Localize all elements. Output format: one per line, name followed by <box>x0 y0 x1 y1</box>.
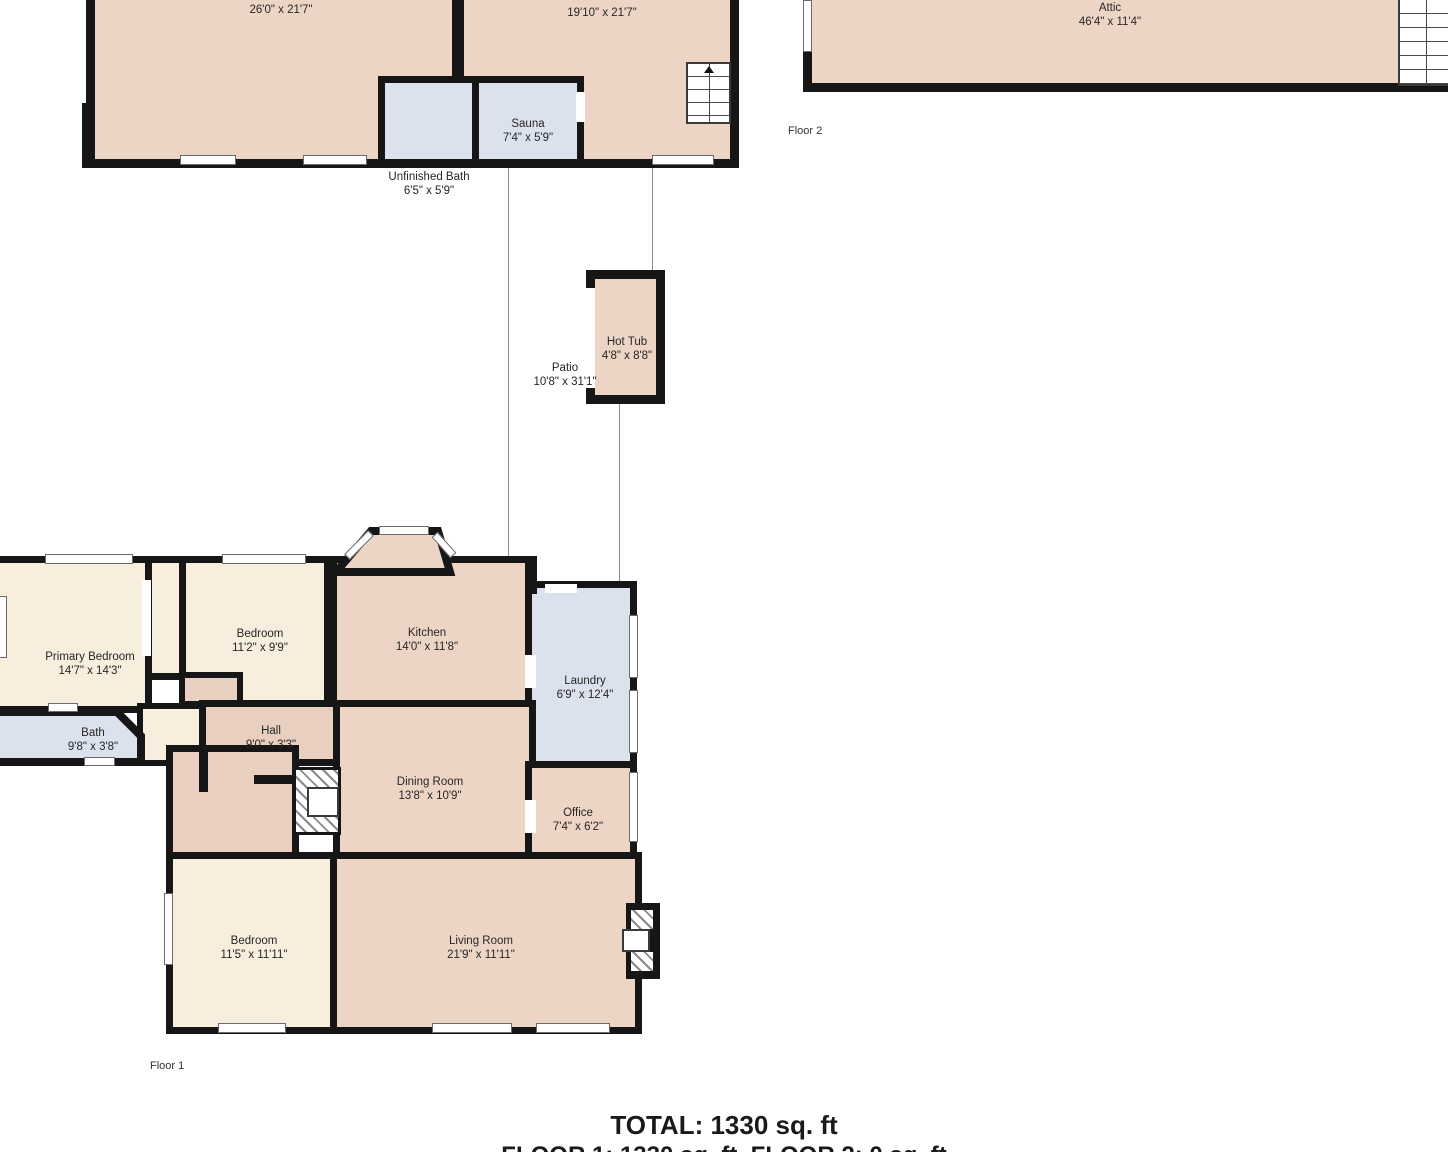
label-bath: Bath 9'8" x 3'8" <box>68 726 118 754</box>
label-dining-room: Dining Room 13'8" x 10'9" <box>397 775 463 803</box>
fireplace <box>629 950 655 973</box>
floorplan-canvas: 26'0" x 21'7" 19'10" x 21'7" Sauna 7'4" … <box>0 0 1448 1152</box>
door-opening <box>142 580 151 656</box>
patio-boundary-line-right-lower <box>619 403 620 589</box>
window <box>629 615 638 678</box>
window <box>218 1023 286 1033</box>
window <box>379 526 429 535</box>
floor-areas-text: FLOOR 1: 1330 sq. ft, FLOOR 2: 0 sq. ft <box>0 1142 1448 1152</box>
stairs-up-arrow-icon <box>704 66 714 73</box>
patio-boundary-line-left <box>508 168 509 563</box>
label-attic: Attic 46'4" x 11'4" <box>1079 1 1141 29</box>
window <box>536 1023 610 1033</box>
label-patio: Patio 10'8" x 31'1" <box>533 361 596 389</box>
window <box>180 155 236 165</box>
door-opening <box>545 584 577 593</box>
window <box>652 155 714 165</box>
window <box>222 554 306 564</box>
room-primary-bedroom <box>0 556 152 713</box>
label-office: Office 7'4" x 6'2" <box>553 806 603 834</box>
door-opening <box>576 92 585 122</box>
floor-1-tag: Floor 1 <box>150 1060 184 1072</box>
stairs-basement <box>686 62 731 124</box>
wall-basement-divider <box>452 0 464 82</box>
window <box>303 155 367 165</box>
window <box>629 690 638 753</box>
label-hot-tub: Hot Tub 4'8" x 8'8" <box>602 335 652 363</box>
stairs-divider <box>1426 0 1427 84</box>
window <box>432 532 457 558</box>
window <box>48 703 78 712</box>
label-kitchen: Kitchen 14'0" x 11'8" <box>396 626 458 654</box>
window <box>45 554 133 564</box>
label-living-room: Living Room 21'9" x 11'11" <box>447 934 515 962</box>
fireplace-box <box>622 929 650 952</box>
patio-boundary-line-right-upper <box>652 168 653 272</box>
label-bedroom-bottom: Bedroom 11'5" x 11'11" <box>221 934 288 962</box>
window <box>164 893 173 965</box>
wall-step <box>82 103 95 168</box>
label-unfinished-bath: Unfinished Bath 6'5" x 5'9" <box>388 170 469 198</box>
label-bedroom-top: Bedroom 11'2" x 9'9" <box>232 627 288 655</box>
fireplace <box>629 908 655 931</box>
label-basement-left: 26'0" x 21'7" <box>249 3 312 17</box>
door-opening <box>525 655 536 688</box>
label-primary-bedroom: Primary Bedroom 14'7" x 14'3" <box>45 650 134 678</box>
wall-stub <box>199 750 208 792</box>
room-unfinished-bath <box>378 76 479 166</box>
total-area-text: TOTAL: 1330 sq. ft <box>0 1110 1448 1141</box>
label-hall: Hall 9'0" x 3'3" <box>246 724 296 752</box>
chimney-flue <box>307 787 339 817</box>
wall-stub <box>525 556 537 594</box>
label-basement-right: 19'10" x 21'7" <box>567 6 636 20</box>
door-opening <box>525 800 536 833</box>
label-laundry: Laundry 6'9" x 12'4" <box>557 674 614 702</box>
window <box>432 1023 512 1033</box>
stairwell <box>166 745 299 862</box>
window <box>0 596 7 658</box>
label-sauna: Sauna 7'4" x 5'9" <box>503 117 553 145</box>
stairs-attic <box>1398 0 1448 86</box>
floor-2-tag: Floor 2 <box>788 125 822 137</box>
window <box>84 757 115 766</box>
window <box>629 772 638 842</box>
window <box>803 0 812 52</box>
